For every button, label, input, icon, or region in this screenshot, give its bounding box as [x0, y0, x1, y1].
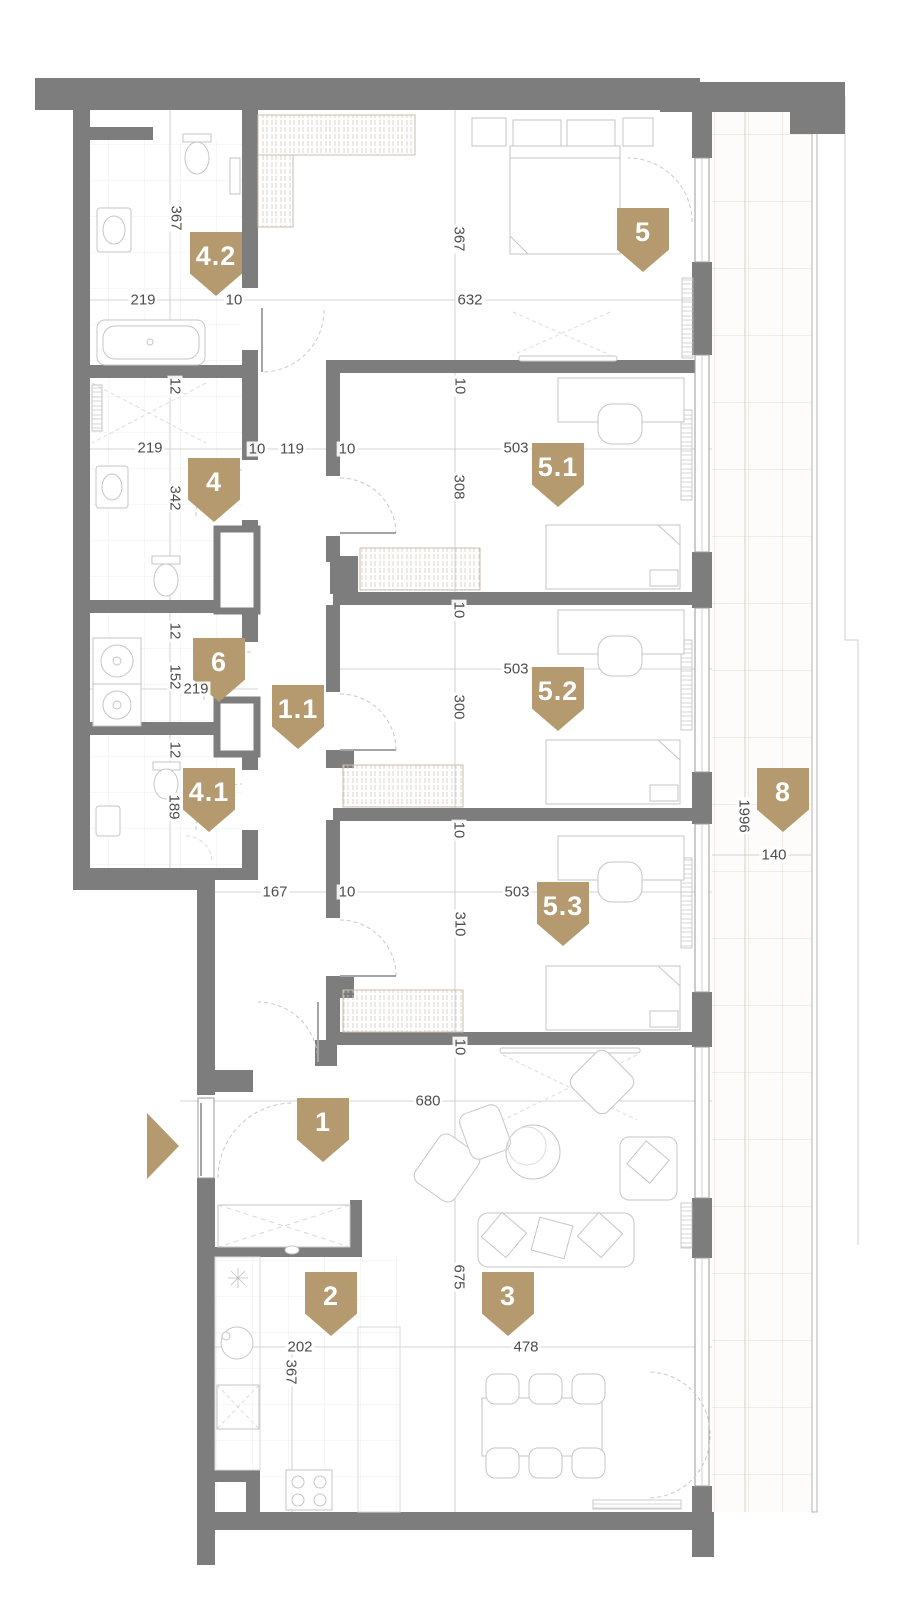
dimension-label: 308 — [452, 472, 467, 501]
dimension-label: 503 — [501, 662, 530, 677]
dimension-label: 367 — [169, 203, 184, 232]
room-marker-3: 3 — [482, 1272, 534, 1336]
dimension-label: 12 — [168, 376, 183, 397]
dimension-label: 342 — [168, 483, 183, 512]
room-marker-1.1: 1.1 — [272, 685, 324, 749]
dimension-label: 632 — [455, 293, 484, 308]
dimension-label: 310 — [453, 909, 468, 938]
dimension-label: 219 — [135, 441, 164, 456]
entrance-arrow — [147, 1113, 179, 1179]
dimension-label: 140 — [759, 848, 788, 863]
dimension-label: 503 — [501, 441, 530, 456]
dimension-label: 10 — [452, 820, 467, 841]
dimension-label: 10 — [337, 442, 358, 457]
dimension-label: 119 — [278, 442, 306, 457]
dimension-label: 367 — [284, 1357, 299, 1386]
dimension-label: 10 — [247, 442, 268, 457]
room-marker-8: 8 — [757, 768, 809, 832]
dimension-label: 367 — [452, 224, 467, 253]
room-marker-5: 5 — [617, 208, 669, 272]
room-marker-5.3: 5.3 — [537, 882, 589, 946]
dimension-label: 1996 — [737, 797, 752, 834]
dimension-label: 12 — [168, 621, 183, 642]
dimension-label: 10 — [453, 376, 468, 397]
room-marker-5.2: 5.2 — [532, 667, 584, 731]
dimension-label: 680 — [413, 1094, 442, 1109]
dimension-label: 10 — [452, 600, 467, 621]
dimension-label: 10 — [337, 885, 358, 900]
dimension-label: 202 — [285, 1340, 314, 1355]
room-marker-1: 1 — [297, 1098, 349, 1162]
dimension-label: 300 — [452, 692, 467, 721]
room-marker-4: 4 — [188, 458, 240, 522]
dimension-label: 478 — [511, 1340, 540, 1355]
dimension-label: 167 — [260, 885, 289, 900]
dimension-label: 10 — [453, 1037, 468, 1058]
room-marker-2: 2 — [305, 1272, 357, 1336]
dimension-label: 189 — [167, 792, 182, 821]
room-marker-4.2: 4.2 — [190, 232, 242, 296]
floor-plan: 4.2545.161.15.24.185.3123367219103676321… — [0, 0, 905, 1607]
labels-overlay: 4.2545.161.15.24.185.3123367219103676321… — [0, 0, 905, 1607]
dimension-label: 675 — [452, 1262, 467, 1291]
dimension-label: 12 — [168, 740, 183, 761]
dimension-label: 219 — [181, 682, 210, 697]
dimension-label: 503 — [502, 885, 531, 900]
dimension-label: 152 — [168, 662, 183, 691]
room-marker-5.1: 5.1 — [532, 443, 584, 507]
room-marker-4.1: 4.1 — [183, 768, 235, 832]
dimension-label: 10 — [224, 293, 245, 308]
dimension-label: 219 — [128, 293, 157, 308]
